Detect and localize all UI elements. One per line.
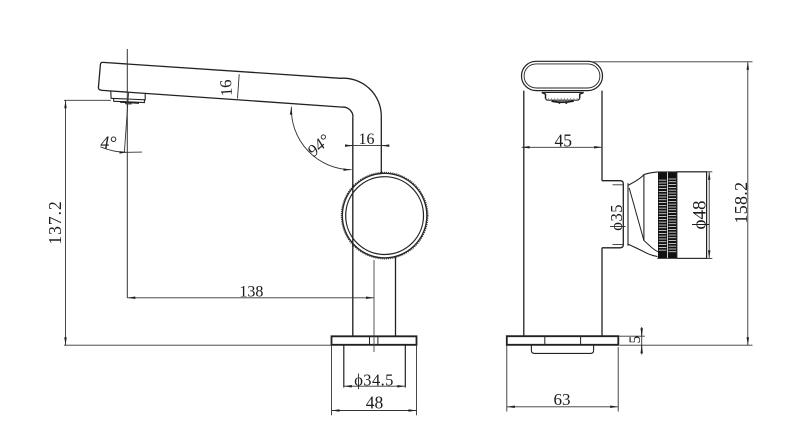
svg-text:63: 63 xyxy=(554,390,571,409)
svg-text:94°: 94° xyxy=(304,130,335,160)
svg-text:158.2: 158.2 xyxy=(731,182,751,224)
svg-text:16: 16 xyxy=(359,131,375,148)
svg-text:ϕ48: ϕ48 xyxy=(690,200,711,229)
svg-text:ϕ34.5: ϕ34.5 xyxy=(354,371,394,390)
svg-text:ϕ35: ϕ35 xyxy=(607,204,626,231)
svg-text:5: 5 xyxy=(627,335,644,343)
svg-text:16: 16 xyxy=(216,79,236,97)
svg-text:4°: 4° xyxy=(100,133,116,153)
svg-text:137.2: 137.2 xyxy=(45,200,65,244)
svg-text:45: 45 xyxy=(554,131,572,151)
svg-text:48: 48 xyxy=(366,393,384,413)
svg-text:138: 138 xyxy=(239,284,263,301)
